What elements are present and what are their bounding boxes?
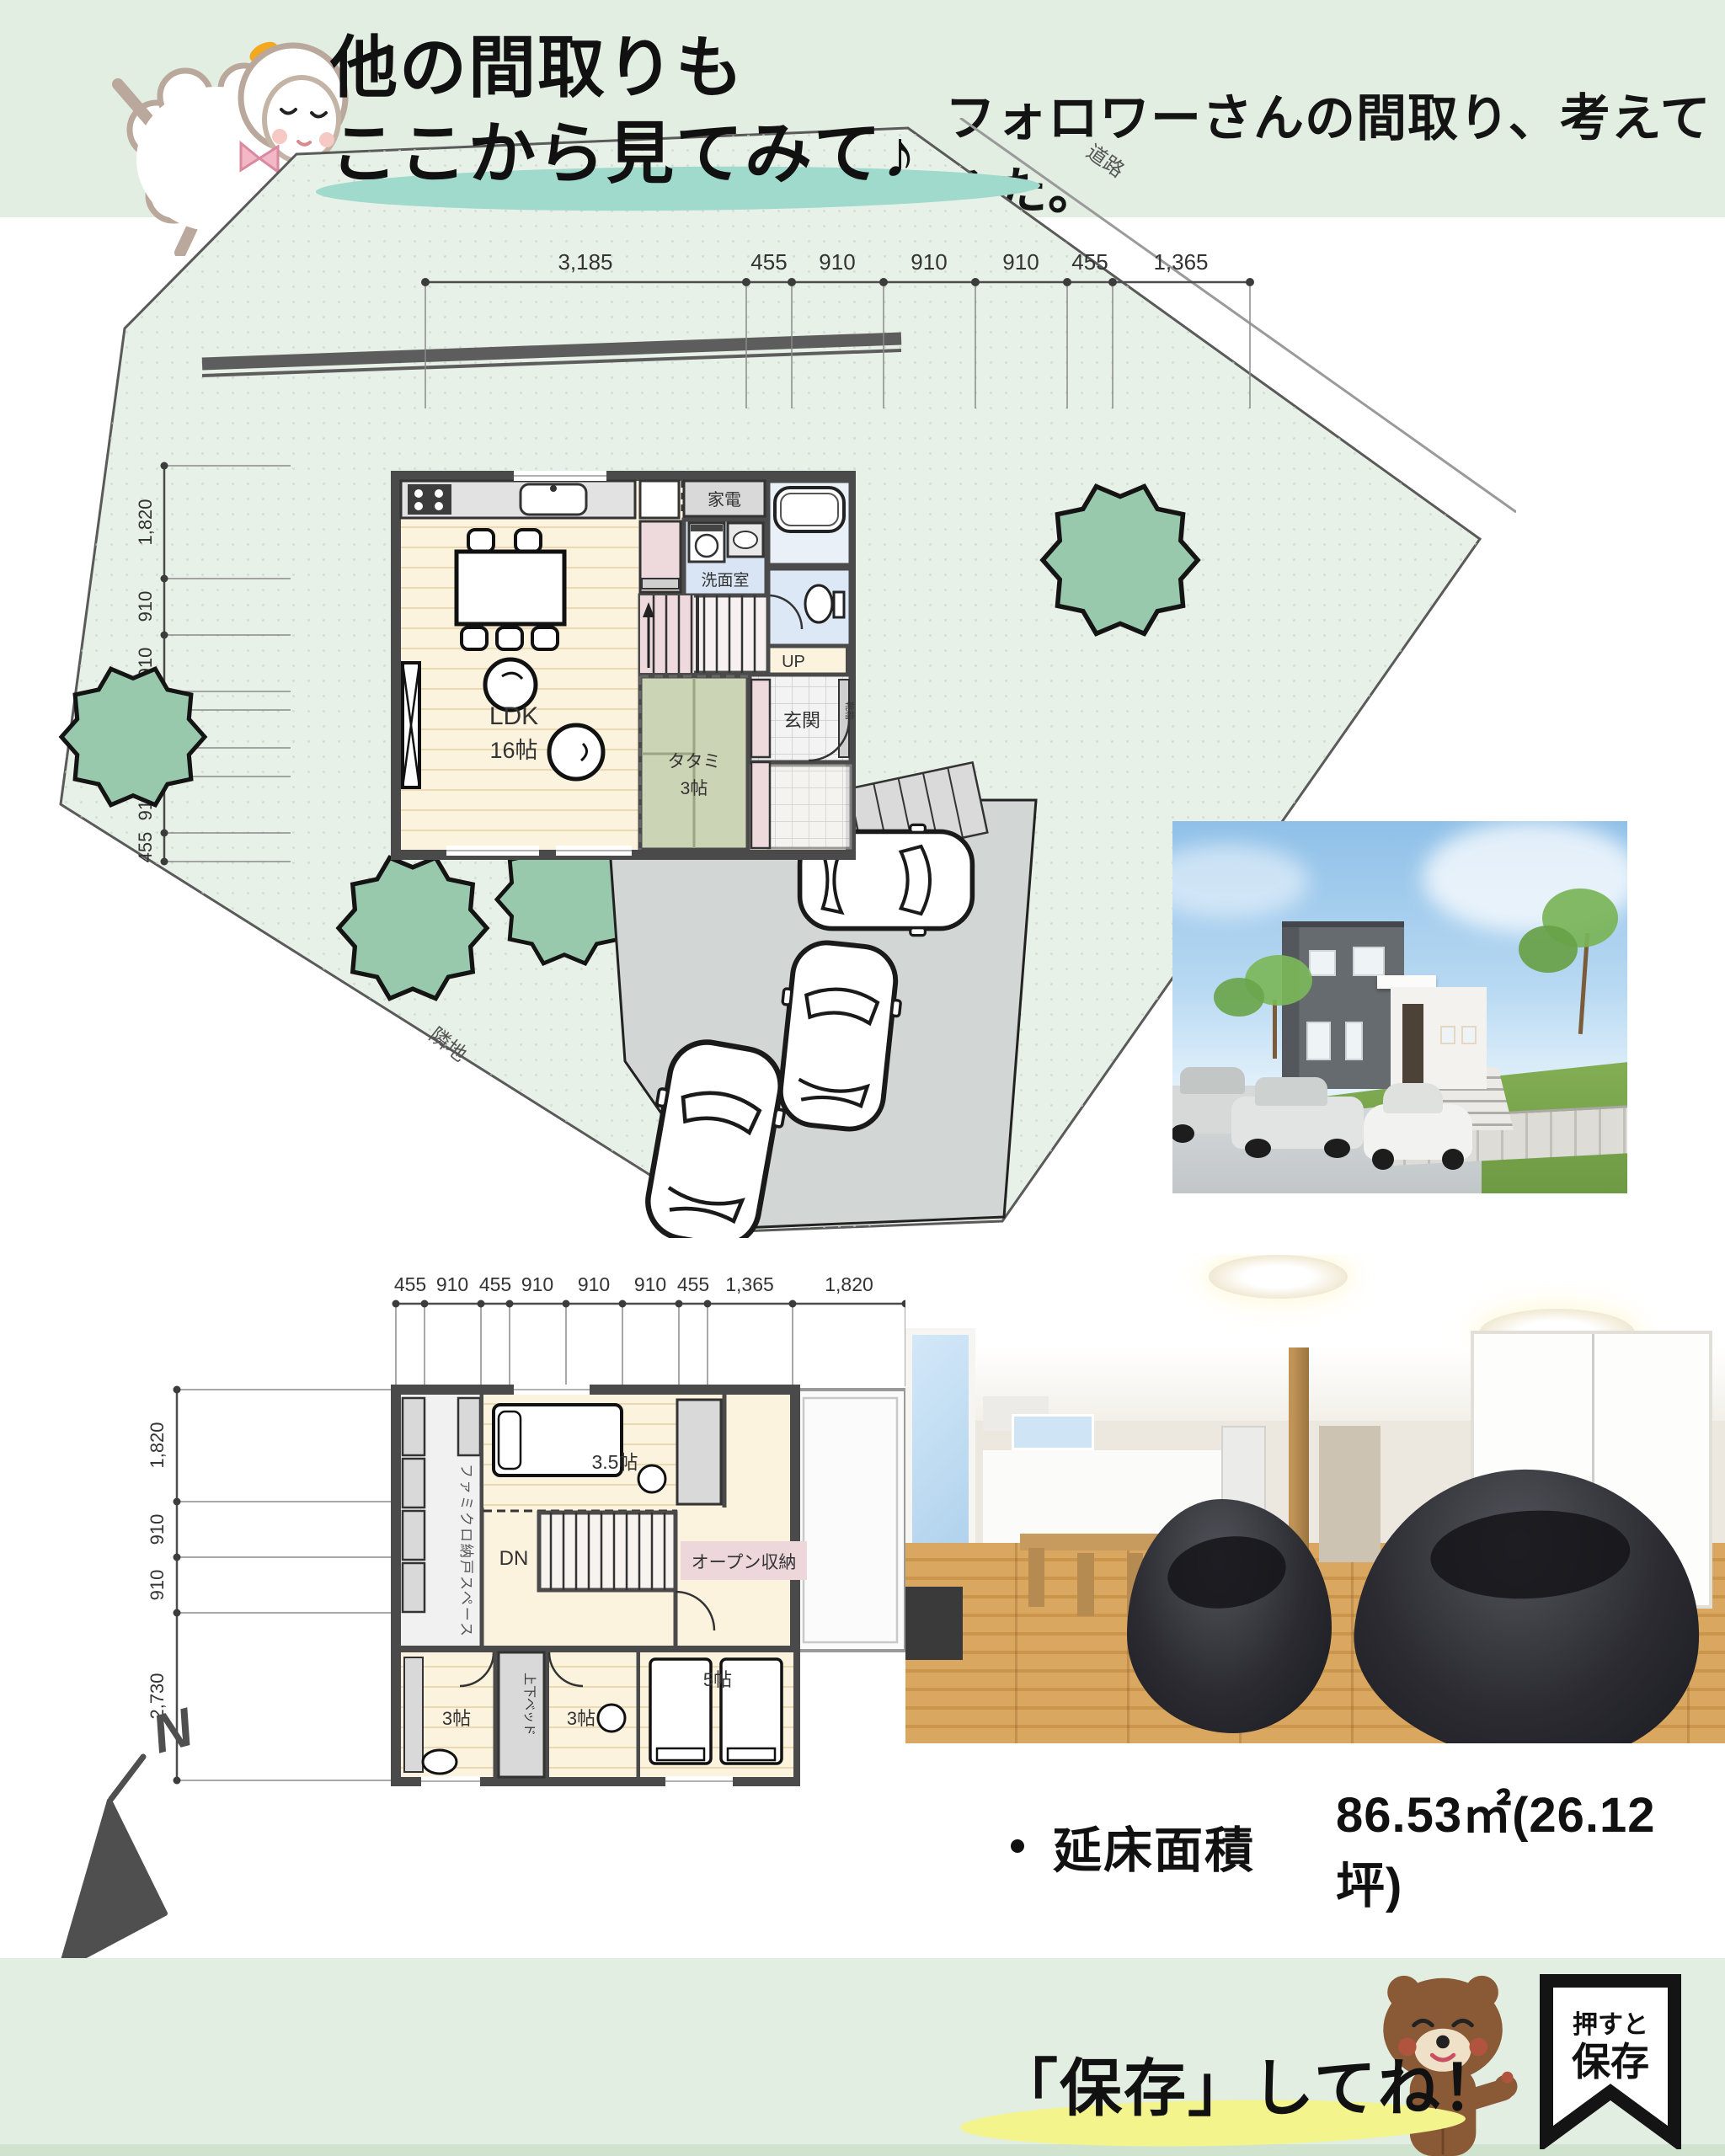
bunk-bed-closet: 上下ベッド — [499, 1652, 544, 1777]
open-storage-label: オープン収納 — [692, 1553, 797, 1572]
floor-area-value: 86.53㎡(26.12坪) — [1336, 1775, 1710, 1917]
floor-area-label: 延床面積 — [1053, 1811, 1306, 1881]
family-closet-label: ファミクロ納戸スペース — [458, 1464, 474, 1638]
svg-text:910: 910 — [578, 1273, 610, 1295]
svg-text:910: 910 — [1002, 249, 1039, 275]
family-closet: ファミクロ納戸スペース — [401, 1395, 482, 1647]
tree-trunk — [1273, 1000, 1277, 1059]
tree-foliage — [1214, 978, 1264, 1017]
north-arrow — [61, 1801, 165, 1969]
floor-area-row: 延床面積 86.53㎡(26.12坪) — [1011, 1775, 1710, 1917]
floor2-plan: 455 910 455 910 910 910 455 1,365 1,820 — [118, 1263, 927, 1819]
house-main-volume — [1282, 921, 1405, 1089]
bedroom-3a: 3帖 — [401, 1652, 494, 1777]
porch — [768, 766, 851, 848]
svg-text:910: 910 — [135, 591, 156, 622]
bedroom-3b-label: 3帖 — [567, 1708, 595, 1729]
ceiling-light — [1209, 1255, 1348, 1299]
ldk-size-label: 16帖 — [489, 738, 537, 763]
infographic-page: 他の間取りも ここから見てみて♪ フォロワーさんの間取り、考えてみた。 — [0, 0, 1725, 2156]
toilet-room — [768, 568, 851, 646]
header-title-line2: ここから見てみて♪ — [330, 111, 1088, 197]
tv-board — [403, 663, 419, 787]
svg-text:455: 455 — [394, 1273, 426, 1295]
save-bookmark-icon[interactable]: 押すと 保存 — [1535, 1971, 1686, 2149]
exterior-render-image — [1172, 821, 1627, 1193]
bedroom-35-label: 3.5帖 — [592, 1451, 638, 1473]
svg-text:455: 455 — [677, 1273, 709, 1295]
bedroom-5: 5帖 — [640, 1652, 793, 1777]
interior-render-image — [905, 1255, 1725, 1743]
svg-text:455: 455 — [135, 832, 156, 863]
svg-text:455: 455 — [1071, 249, 1108, 275]
up-label: UP — [782, 653, 805, 671]
svg-text:910: 910 — [521, 1273, 553, 1295]
dim-line-top-2f: 455 910 455 910 910 910 455 1,365 1,820 — [393, 1273, 910, 1386]
svg-text:910: 910 — [436, 1273, 468, 1295]
front-door — [1402, 1004, 1423, 1090]
svg-text:1,820: 1,820 — [825, 1273, 873, 1295]
bedroom-5-label: 5帖 — [703, 1669, 732, 1690]
appliance-label: 家電 — [708, 490, 741, 510]
tree-trunk — [1578, 933, 1589, 1034]
north-label: N — [146, 1701, 200, 1765]
cloud — [1172, 844, 1309, 918]
bedroom-35: 3.5帖 — [483, 1395, 724, 1508]
car — [1231, 1097, 1364, 1149]
tv-board — [905, 1587, 963, 1660]
washroom-label: 洗面室 — [701, 571, 749, 590]
round-stool — [549, 725, 603, 779]
svg-text:3,185: 3,185 — [558, 249, 612, 275]
north-compass: N — [42, 1701, 236, 1979]
kitchen-window — [1012, 1414, 1093, 1451]
bookmark-label-top: 押すと — [1573, 2011, 1648, 2039]
ldk-label: LDK — [489, 702, 538, 730]
shoebox-label: 靴箱 — [844, 702, 856, 720]
kitchen-counter — [401, 481, 635, 518]
svg-text:1,820: 1,820 — [135, 499, 156, 545]
stairs-up — [640, 595, 768, 673]
header-title: 他の間取りも ここから見てみて♪ — [330, 25, 1088, 198]
chair — [1028, 1548, 1044, 1607]
tall-cabinet — [640, 481, 679, 518]
dn-label: DN — [499, 1547, 529, 1570]
tatami-label: タタミ — [668, 752, 721, 771]
header-title-line1: 他の間取りも — [330, 25, 1088, 111]
bunk-bed-label: 上下ベッド — [522, 1673, 537, 1736]
bedroom-3a-label: 3帖 — [442, 1708, 471, 1729]
svg-text:455: 455 — [750, 249, 787, 275]
svg-text:1,365: 1,365 — [725, 1273, 774, 1295]
floor1-plan: 家電 洗面室 — [396, 471, 856, 856]
svg-text:910: 910 — [911, 249, 947, 275]
washroom: 洗面室 — [684, 520, 766, 595]
svg-text:1,365: 1,365 — [1153, 249, 1208, 275]
tree-foliage — [1519, 926, 1578, 973]
svg-text:910: 910 — [634, 1273, 666, 1295]
chair — [1077, 1553, 1093, 1616]
bookmark-label-bottom: 保存 — [1572, 2040, 1649, 2084]
bedroom-3b: 3帖 — [549, 1652, 637, 1777]
svg-text:910: 910 — [147, 1514, 168, 1545]
car — [1364, 1104, 1473, 1160]
lower-roof — [795, 1390, 905, 1651]
bathroom — [768, 481, 851, 565]
bullet-icon — [1011, 1839, 1024, 1853]
road-label: 道路 — [1082, 141, 1129, 183]
hallway-opening — [1319, 1426, 1381, 1562]
tatami-room: タタミ 3帖 — [640, 676, 748, 850]
svg-text:910: 910 — [147, 1570, 168, 1601]
svg-text:455: 455 — [479, 1273, 511, 1295]
save-cta: 「保存」してね！ — [996, 2038, 1506, 2128]
svg-text:1,820: 1,820 — [147, 1422, 168, 1468]
tatami-size-label: 3帖 — [681, 779, 708, 798]
svg-text:910: 910 — [819, 249, 855, 275]
genkan-label: 玄関 — [783, 710, 820, 731]
